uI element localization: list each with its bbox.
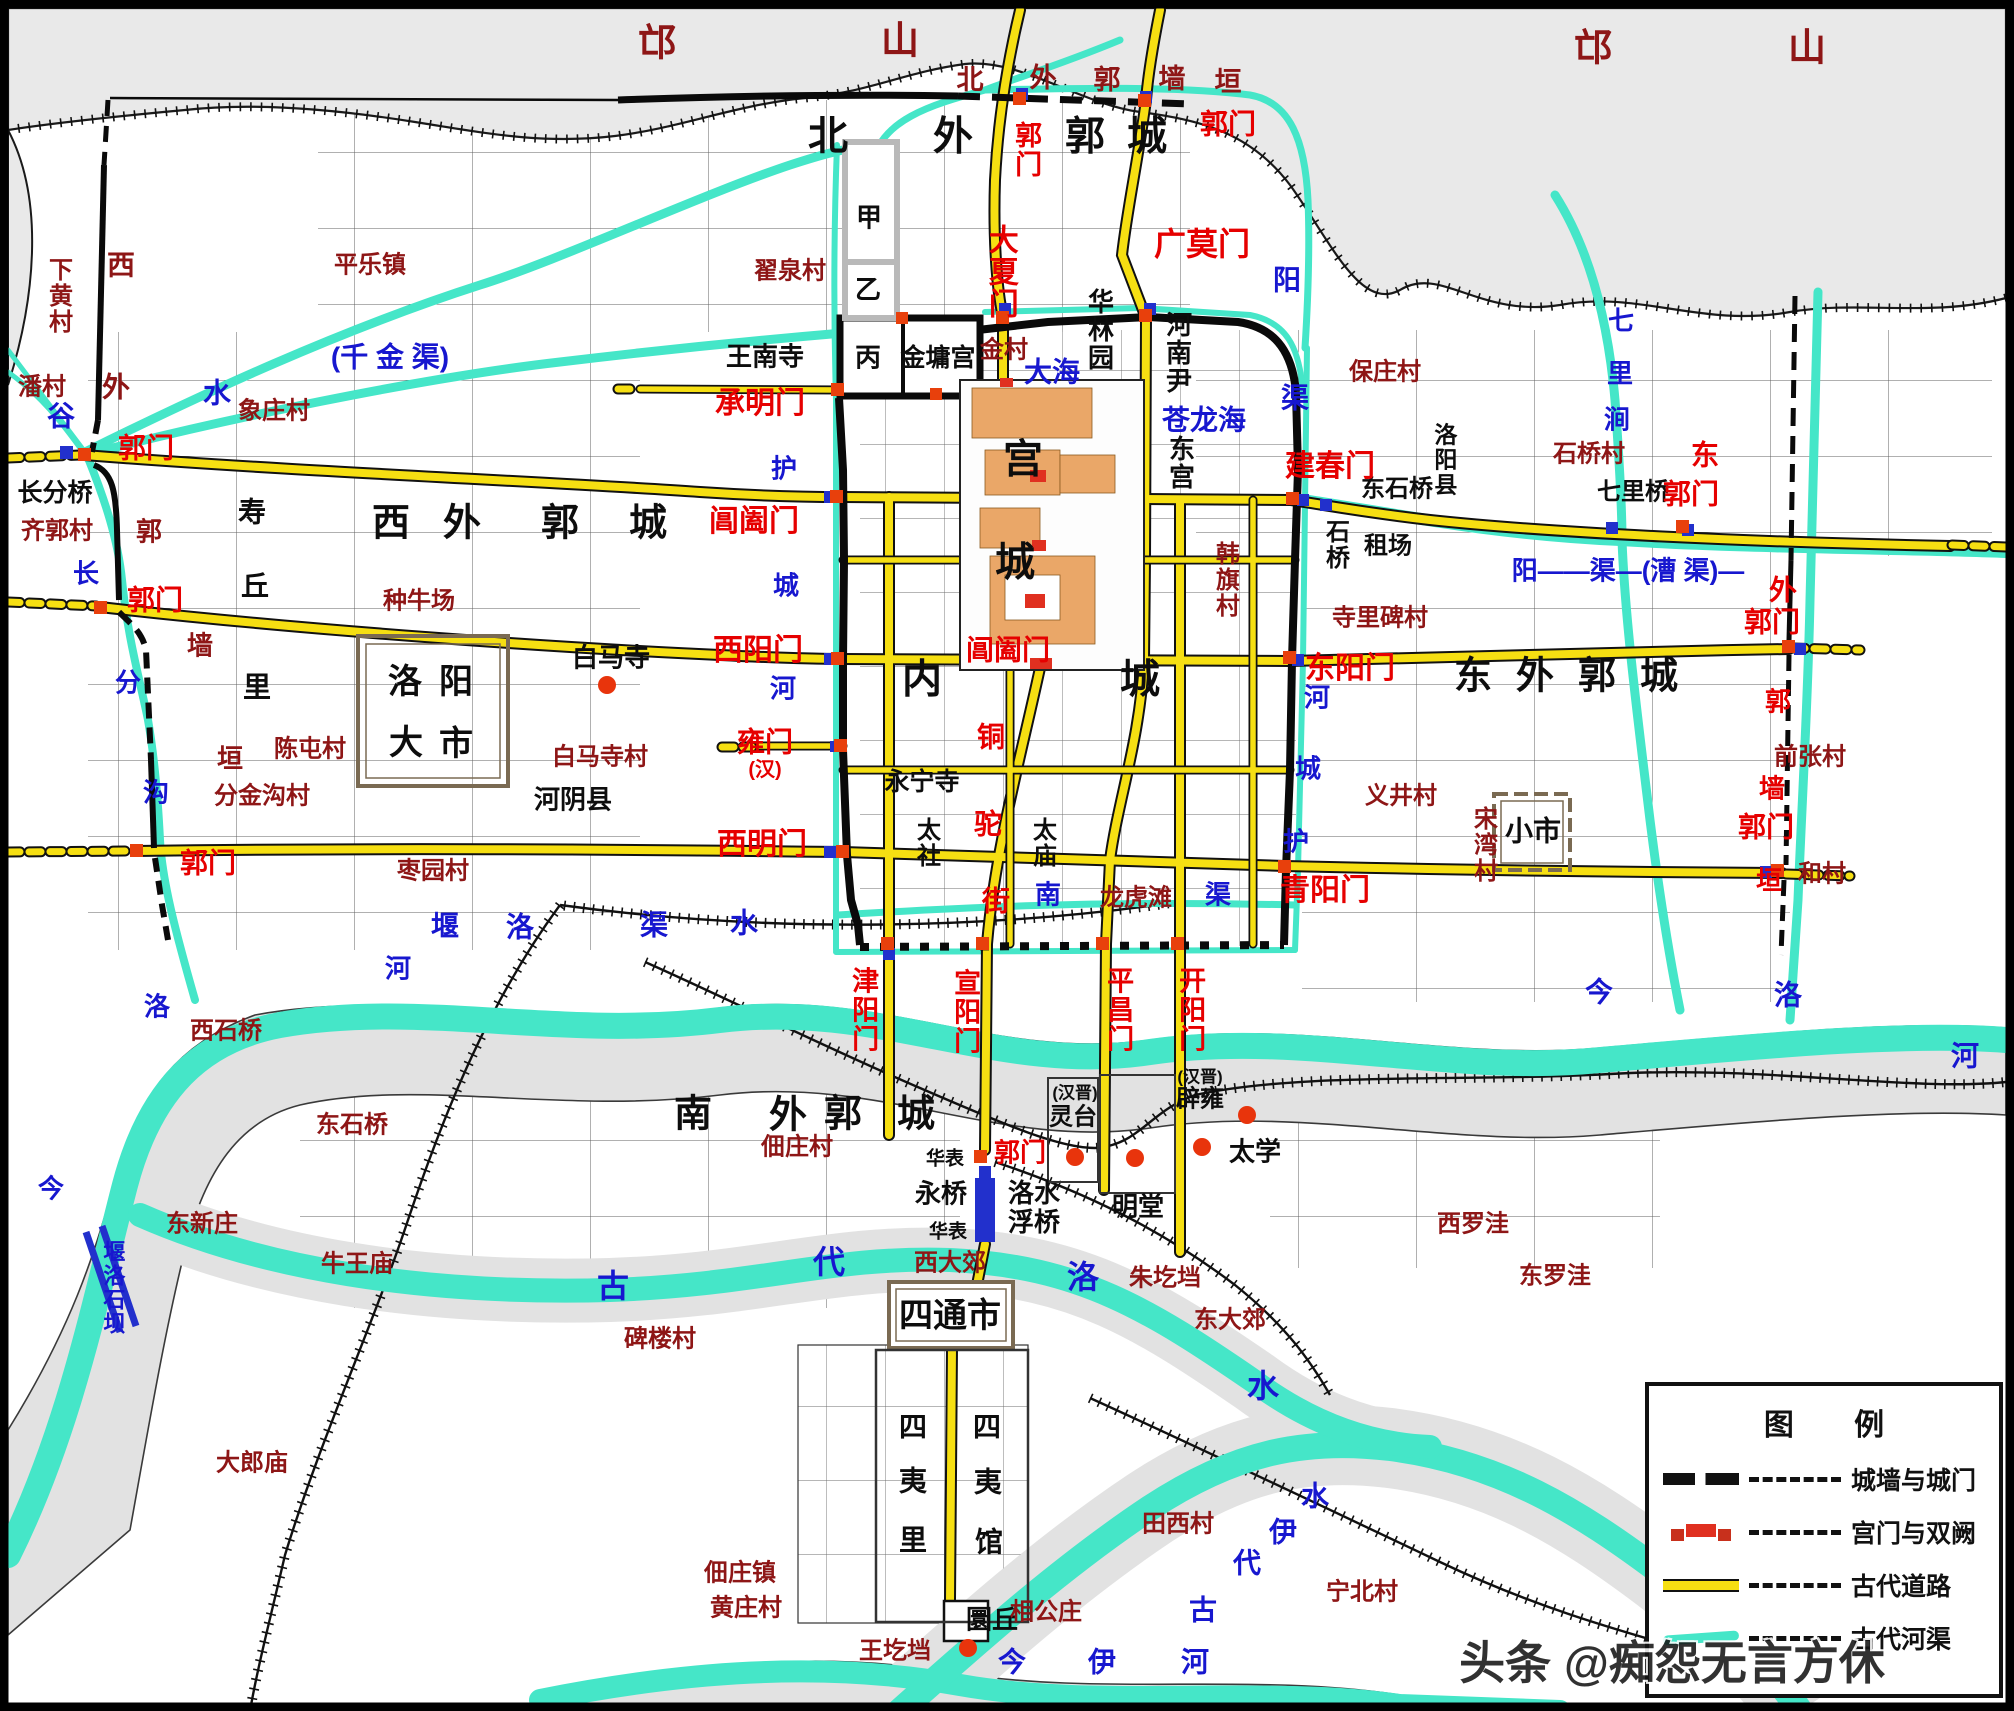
site-dot [598,676,616,694]
legend-title: 图 例 [1689,1400,1985,1444]
legend-item: 古代道路 [1663,1567,1985,1603]
legend-connector [1749,1530,1841,1535]
wall-symbol-icon [1663,1473,1739,1485]
legend-item: 宫门与双阙 [1663,1514,1985,1550]
legend-item-label: 城墙与城门 [1851,1461,1976,1497]
watermark: 头条 @痴怨无言方休 [1459,1627,1885,1693]
legend-item-label: 古代道路 [1851,1567,1951,1603]
legend-connector [1749,1583,1841,1588]
site-dot [1238,1106,1256,1124]
site-dot [959,1639,977,1657]
site-dot [1126,1149,1144,1167]
pontoon-bridge [975,1178,995,1242]
ancient-luoyang-map: 邙山邙山北外郭城郭门郭门北外郭墙垣大夏门广莫门翟泉村王南寺甲乙丙金墉宫金村承明门… [0,0,2014,1711]
site-dot [1193,1138,1211,1156]
legend-connector [1749,1477,1841,1482]
legend-item-label: 宫门与双阙 [1851,1514,1976,1550]
gate-symbol-icon [1663,1523,1739,1541]
site-dot [1066,1148,1084,1166]
road-symbol-icon [1663,1579,1739,1592]
palace-compound [960,378,1144,670]
legend-item: 城墙与城门 [1663,1461,1985,1497]
